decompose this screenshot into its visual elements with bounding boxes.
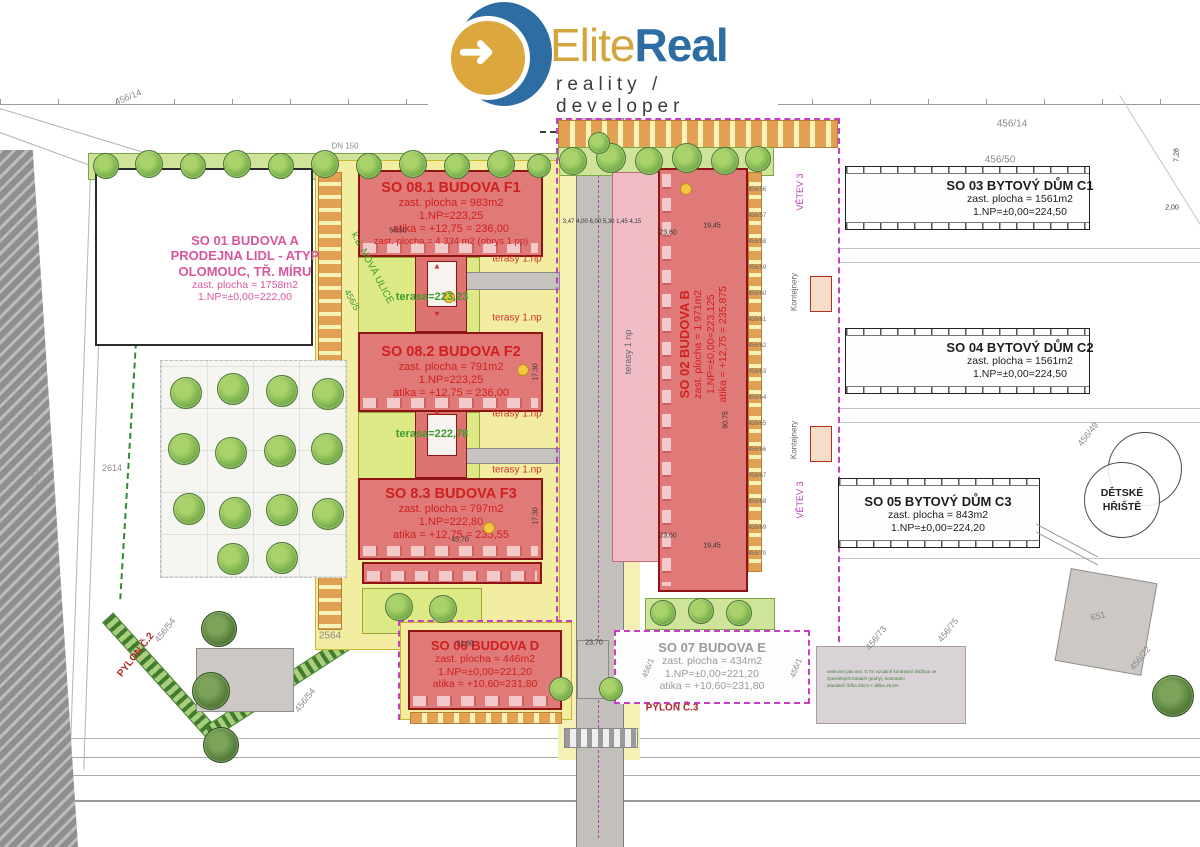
- annotation-label: 7,28: [1174, 148, 1181, 162]
- building-label-so02: SO 02 BUDOVA B zast. plocha = 1 971m2 1.…: [677, 249, 729, 439]
- tree-icon: [311, 433, 343, 465]
- container-stand: [810, 426, 832, 462]
- building-f-wing: [362, 562, 542, 584]
- container-stand: [810, 276, 832, 312]
- annotation-label: 456/68: [748, 499, 766, 505]
- logo-arrow-icon: ➜: [458, 26, 495, 77]
- tree-icon: [549, 677, 573, 701]
- core-f2: [415, 405, 467, 478]
- tree-icon: [711, 147, 739, 175]
- annotation-label: 456/61: [748, 317, 766, 323]
- tree-icon: [444, 153, 470, 179]
- annotation-label: 2564: [319, 631, 341, 642]
- playground-path: [1036, 532, 1098, 566]
- tree-icon: [264, 435, 296, 467]
- tree-icon: [268, 153, 294, 179]
- annotation-label: terasa=222,78: [396, 428, 468, 440]
- tree-icon: [215, 437, 247, 469]
- playground-circle: DĚTSKÉ HŘIŠTĚ: [1084, 462, 1160, 538]
- tree-icon: [266, 542, 298, 574]
- annotation-label: 90,75: [723, 411, 730, 429]
- tree-icon: [527, 154, 551, 178]
- annotation-label: Kontejnery: [790, 421, 799, 459]
- building-label-c1: SO 03 BYTOVÝ DŮM C1 zast. plocha = 1561m…: [920, 178, 1120, 218]
- building-label-so06: SO 06 BUDOVA D zast. plocha = 446m2 1.NP…: [412, 638, 558, 690]
- annotation-label: terasy 1.np: [492, 465, 541, 476]
- annotation-label: 456/54: [153, 616, 178, 644]
- parcel-line-diagonal: [1119, 95, 1200, 257]
- tree-icon: [599, 677, 623, 701]
- road-edge-left: [69, 152, 92, 770]
- parcel-line: [838, 262, 1200, 263]
- tree-icon: [311, 150, 339, 178]
- tree-icon: [266, 375, 298, 407]
- existing-building-southeast: venkovní pás min. 0,7m vizuálně kontrast…: [816, 646, 966, 724]
- annotation-label: 456/56: [748, 187, 766, 193]
- tree-icon: [203, 727, 239, 763]
- annotation-label: 17,30: [533, 507, 540, 525]
- walkway-f1: [462, 272, 560, 290]
- left-road-hatched-strip: [0, 150, 78, 847]
- playground-path: [1036, 524, 1098, 558]
- tree-icon: [170, 377, 202, 409]
- tree-icon: [219, 497, 251, 529]
- annotation-label: 456/58: [748, 239, 766, 245]
- tree-icon: [588, 132, 610, 154]
- annotation-label: 19,45: [703, 223, 721, 230]
- annotation-label: VĚTEV 3: [795, 481, 805, 518]
- construction-note: venkovní pás min. 0,7m vizuálně kontrast…: [827, 669, 947, 689]
- tree-icon: [223, 150, 251, 178]
- tree-icon: [217, 373, 249, 405]
- annotation-label: 456/54: [293, 686, 318, 714]
- annotation-label: VĚTEV 3: [795, 173, 805, 210]
- building-label-c3: SO 05 BYTOVÝ DŮM C3 zast. plocha = 843m2…: [838, 494, 1038, 534]
- tree-icon: [266, 494, 298, 526]
- annotation-label: 23,60: [659, 230, 677, 237]
- annotation-label: 456/63: [748, 369, 766, 375]
- annotation-label: Kontejnery: [790, 273, 799, 311]
- tree-icon: [745, 146, 771, 172]
- annotation-label: 456/59: [748, 265, 766, 271]
- eliteral-logo: ➜ EliteReal reality / developer: [428, 0, 778, 112]
- annotation-label: terasy 1.np: [492, 409, 541, 420]
- plan-marker: [680, 183, 692, 195]
- annotation-label: ▲: [433, 408, 441, 417]
- tree-icon: [312, 498, 344, 530]
- annotation-label: 456/75: [936, 616, 961, 644]
- tree-icon: [180, 153, 206, 179]
- logo-tagline: reality / developer: [556, 74, 778, 118]
- annotation-label: ▼: [433, 310, 441, 319]
- tree-icon: [93, 153, 119, 179]
- building-label-f3: SO 8.3 BUDOVA F3 zast. plocha = 797m2 1.…: [362, 486, 540, 542]
- tree-icon: [650, 600, 676, 626]
- tree-icon: [1152, 675, 1194, 717]
- tree-icon: [487, 150, 515, 178]
- annotation-label: terasy 1 np: [623, 330, 633, 375]
- annotation-label: 456/70: [748, 551, 766, 557]
- annotation-label: terasy 1.np: [492, 313, 541, 324]
- crosswalk: [564, 728, 638, 748]
- plan-marker: [517, 364, 529, 376]
- annotation-label: DN 150: [331, 142, 358, 151]
- annotation-label: 456/49: [1076, 420, 1101, 448]
- terrace-strip-b: [612, 172, 660, 562]
- plan-marker: [483, 522, 495, 534]
- annotation-label: 456/14: [997, 119, 1028, 130]
- annotation-label: 456/66: [748, 447, 766, 453]
- tree-icon: [726, 600, 752, 626]
- tree-icon: [429, 595, 457, 623]
- playground-label-line2: HŘIŠTĚ: [1103, 500, 1142, 514]
- annotation-label: 2229: [30, 468, 40, 488]
- tree-icon: [688, 598, 714, 624]
- annotation-label: terasy 1.np: [492, 254, 541, 265]
- parcel-line: [838, 558, 1200, 559]
- annotation-label: 19,45: [703, 543, 721, 550]
- tree-icon: [559, 147, 587, 175]
- tree-icon: [385, 593, 413, 621]
- tree-icon: [135, 150, 163, 178]
- parking-cells-so06: [410, 712, 562, 724]
- playground-label-line1: DĚTSKÉ: [1101, 486, 1144, 500]
- annotation-label: 3,47 4,00 6,00 5,30 1,45 4,15: [563, 219, 641, 225]
- annotation-label: 456/65: [748, 421, 766, 427]
- parcel-line: [838, 408, 1200, 409]
- building-label-f2: SO 08.2 BUDOVA F2 zast. plocha = 791m2 1…: [362, 344, 540, 400]
- annotation-label: 31,60: [456, 641, 474, 648]
- annotation-label: 456/60: [748, 291, 766, 297]
- annotation-label: 456/14: [113, 87, 142, 107]
- annotation-label: 456/64: [748, 395, 766, 401]
- annotation-label: 456/62: [748, 343, 766, 349]
- building-label-c2: SO 04 BYTOVÝ DŮM C2 zast. plocha = 1561m…: [920, 340, 1120, 380]
- annotation-label: 23,60: [659, 533, 677, 540]
- annotation-label: 2,00: [1165, 205, 1179, 212]
- annotation-label: 456/69: [748, 525, 766, 531]
- parcel-line: [838, 422, 1200, 423]
- parcel-line: [838, 248, 1200, 249]
- building-label-f1: SO 08.1 BUDOVA F1 zast. plocha = 983m2 1…: [362, 180, 540, 247]
- annotation-label: 45,70: [451, 537, 469, 544]
- tree-icon: [399, 150, 427, 178]
- annotation-label: 23,70: [585, 640, 603, 647]
- walkway-f2: [462, 448, 560, 464]
- annotation-label: 17,30: [533, 363, 540, 381]
- annotation-label: 56,50: [389, 228, 407, 235]
- tree-icon: [217, 543, 249, 575]
- tree-icon: [168, 433, 200, 465]
- tree-icon: [201, 611, 237, 647]
- tree-icon: [173, 493, 205, 525]
- annotation-label: ▲: [433, 262, 441, 271]
- annotation-label: 456/57: [748, 213, 766, 219]
- annotation-label: 2614: [102, 463, 122, 473]
- tree-icon: [635, 147, 663, 175]
- annotation-label: terasa=223,23: [396, 291, 468, 303]
- annotation-label: 456/50: [985, 155, 1016, 166]
- annotation-label: PYLON Č.3: [646, 703, 699, 714]
- tree-icon: [192, 672, 230, 710]
- logo-wordmark: EliteReal: [550, 18, 728, 72]
- tree-icon: [356, 153, 382, 179]
- site-plan-canvas: DĚTSKÉ HŘIŠTĚ venkovní pás min. 0,7m viz…: [0, 0, 1200, 847]
- development-boundary: [838, 118, 840, 642]
- building-label-so01: SO 01 BUDOVA A PRODEJNA LIDL - ATYP OLOM…: [140, 233, 350, 304]
- tree-icon: [672, 143, 702, 173]
- tree-icon: [312, 378, 344, 410]
- annotation-label: 456/67: [748, 473, 766, 479]
